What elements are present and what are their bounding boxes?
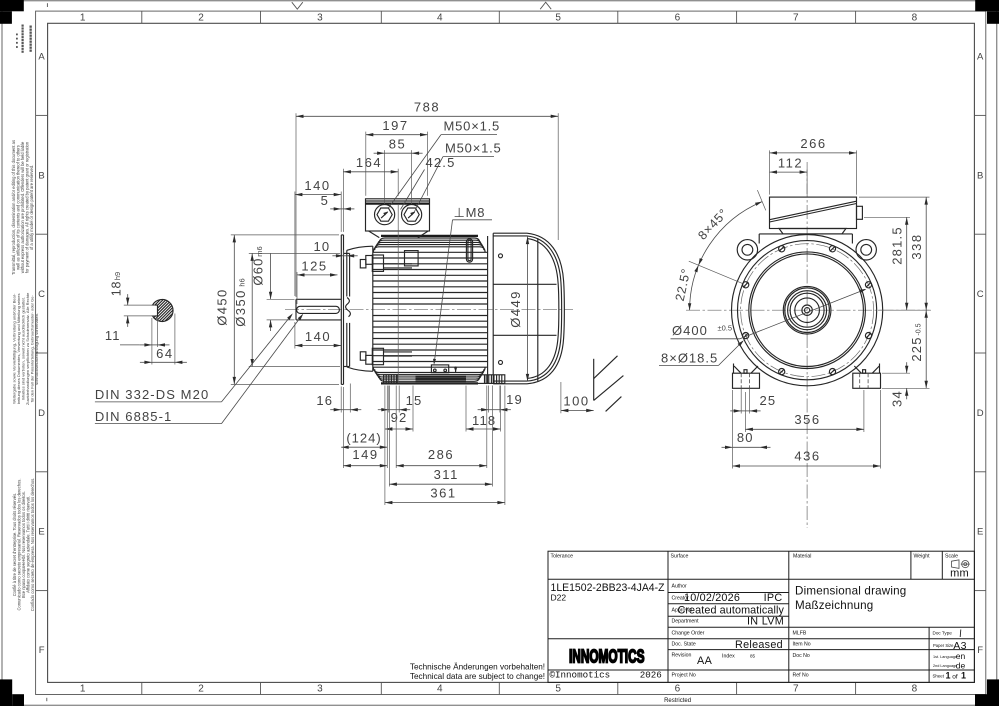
svg-text:Revision: Revision	[672, 653, 692, 659]
svg-text:2: 2	[198, 13, 204, 24]
svg-text:D22: D22	[551, 593, 567, 603]
svg-text:Paper Size: Paper Size	[933, 643, 954, 648]
svg-text:M50×1.5: M50×1.5	[444, 119, 501, 134]
svg-text:E: E	[977, 527, 983, 538]
svg-text:7: 7	[793, 684, 799, 695]
svg-text:Created automatically: Created automatically	[677, 604, 784, 616]
svg-text:Doc. State: Doc. State	[672, 642, 696, 648]
svg-text:Dimensional drawing: Dimensional drawing	[795, 585, 906, 598]
svg-text:Maßzeichnung: Maßzeichnung	[795, 599, 873, 612]
svg-text:1: 1	[961, 671, 966, 681]
svg-text:Project No: Project No	[672, 673, 696, 679]
svg-text:8: 8	[912, 13, 918, 24]
svg-text:INNOMOTICS: INNOMOTICS	[569, 646, 645, 666]
svg-text:15: 15	[406, 393, 423, 408]
svg-text:IPC: IPC	[764, 592, 783, 604]
svg-text:164: 164	[356, 155, 382, 170]
svg-text:16: 16	[316, 393, 333, 408]
svg-text:266: 266	[800, 136, 826, 151]
svg-text:Technische Änderungen vorbehal: Technische Änderungen vorbehalten!	[410, 661, 545, 671]
svg-text:6: 6	[675, 13, 681, 24]
svg-text:F: F	[977, 645, 983, 656]
svg-text:10: 10	[313, 239, 330, 254]
svg-text:-0.5: -0.5	[916, 323, 923, 335]
svg-text:DIN 332-DS M20: DIN 332-DS M20	[95, 387, 209, 402]
svg-text:225: 225	[909, 336, 924, 361]
svg-text:286: 286	[428, 447, 454, 462]
svg-text:125: 125	[301, 258, 327, 273]
svg-text:de: de	[956, 661, 966, 671]
svg-text:42.5: 42.5	[425, 155, 455, 170]
svg-text:4: 4	[437, 13, 443, 24]
svg-text:85: 85	[750, 654, 756, 659]
svg-text:of: of	[952, 674, 958, 681]
svg-text:356: 356	[794, 412, 820, 427]
svg-text:3: 3	[317, 13, 323, 24]
svg-text:140: 140	[305, 329, 331, 344]
svg-text:64: 64	[156, 346, 173, 361]
svg-text:Scale: Scale	[945, 554, 958, 560]
svg-text:7: 7	[793, 13, 799, 24]
svg-text:19: 19	[506, 392, 523, 407]
svg-text:5: 5	[321, 193, 329, 208]
svg-text:85: 85	[389, 137, 406, 152]
svg-text:2: 2	[198, 684, 204, 695]
svg-text:Confiado como secreto de empre: Confiado como secreto de empresa. Nos re…	[30, 478, 35, 612]
svg-text:C: C	[38, 289, 45, 300]
svg-text:of a utility model or design p: of a utility model or design patent are …	[29, 165, 34, 250]
svg-text:Weight: Weight	[914, 554, 931, 560]
svg-text:MLFB: MLFB	[793, 630, 807, 636]
svg-text:197: 197	[382, 118, 408, 133]
svg-text:788: 788	[414, 100, 440, 115]
svg-text:Surface: Surface	[671, 554, 689, 560]
svg-text:h9: h9	[113, 272, 122, 280]
svg-text:92: 92	[391, 410, 408, 425]
svg-text:Index: Index	[722, 654, 735, 660]
svg-text:B: B	[38, 170, 44, 181]
svg-text:AA: AA	[697, 655, 713, 667]
svg-text:311: 311	[434, 467, 459, 482]
svg-text:Department: Department	[672, 619, 700, 625]
svg-text:Doc No: Doc No	[793, 653, 810, 659]
svg-text:Ø60: Ø60	[251, 257, 266, 285]
svg-text:Restricted: Restricted	[664, 698, 691, 704]
svg-text:Ø450: Ø450	[215, 288, 230, 325]
svg-text:C: C	[977, 289, 984, 300]
svg-text:Ø449: Ø449	[508, 290, 523, 327]
svg-text:6: 6	[675, 684, 681, 695]
svg-text:A: A	[38, 52, 45, 63]
svg-text:1: 1	[80, 13, 86, 24]
svg-text:B: B	[977, 170, 983, 181]
svg-text:D: D	[977, 408, 984, 419]
svg-text:Technical data are subject to: Technical data are subject to change!	[410, 672, 545, 681]
svg-text:80: 80	[737, 430, 754, 445]
svg-text:338: 338	[909, 233, 924, 259]
svg-text:Doc Type: Doc Type	[933, 630, 953, 635]
svg-text:1LE1502-2BB23-4JA4-Z: 1LE1502-2BB23-4JA4-Z	[551, 582, 665, 594]
svg-text:Released: Released	[735, 639, 783, 651]
svg-text:D: D	[38, 408, 45, 419]
svg-text:2026: 2026	[640, 670, 662, 681]
svg-text:10/02/2026: 10/02/2026	[684, 592, 740, 604]
svg-text:281.5: 281.5	[889, 226, 904, 265]
svg-text:⊥M8: ⊥M8	[454, 205, 486, 220]
svg-text:5: 5	[555, 13, 561, 24]
svg-text:2nd Language: 2nd Language	[933, 664, 957, 668]
svg-text:361: 361	[430, 485, 456, 500]
svg-text:1: 1	[80, 684, 86, 695]
svg-text:(124): (124)	[346, 431, 381, 446]
svg-text:E: E	[38, 527, 44, 538]
svg-text:436: 436	[794, 448, 820, 463]
svg-text:8×Ø18.5: 8×Ø18.5	[661, 351, 718, 366]
svg-text:11: 11	[105, 328, 121, 343]
svg-text:©Innomotics: ©Innomotics	[550, 670, 611, 681]
svg-text:Ø350: Ø350	[233, 289, 248, 326]
svg-text:M50×1.5: M50×1.5	[445, 141, 502, 156]
svg-text:149: 149	[352, 447, 378, 462]
svg-text:mm: mm	[950, 568, 969, 580]
svg-text:F: F	[39, 645, 45, 656]
svg-text:m6: m6	[255, 246, 264, 256]
svg-text:1st. Language: 1st. Language	[933, 655, 957, 659]
svg-text:25: 25	[759, 393, 776, 408]
svg-text:4: 4	[437, 684, 443, 695]
svg-text:140: 140	[304, 178, 330, 193]
svg-text:112: 112	[778, 155, 803, 170]
svg-text:Item No: Item No	[793, 642, 811, 648]
svg-text:Ref No: Ref No	[793, 673, 809, 679]
svg-text:DIN 6885-1: DIN 6885-1	[95, 409, 172, 424]
svg-text:8: 8	[912, 684, 918, 695]
svg-text:h6: h6	[238, 278, 247, 286]
svg-text:18: 18	[110, 281, 124, 297]
svg-text:Tolerance: Tolerance	[551, 554, 574, 560]
svg-text:Change Order: Change Order	[672, 630, 705, 636]
svg-text:A: A	[977, 52, 984, 63]
svg-text:Ø400: Ø400	[672, 323, 708, 338]
svg-text:1: 1	[945, 671, 950, 681]
svg-text:schmacksmustereintragung vorbe: schmacksmustereintragung vorbehalten.	[34, 313, 39, 385]
svg-text:en: en	[956, 651, 966, 661]
svg-text:Material: Material	[793, 554, 811, 560]
svg-text:5: 5	[555, 684, 561, 695]
svg-text:IN LVM: IN LVM	[747, 616, 784, 628]
svg-text:34: 34	[889, 390, 904, 407]
svg-text:Sheet: Sheet	[933, 674, 945, 679]
svg-text:100: 100	[563, 393, 589, 408]
svg-text:Author: Author	[672, 584, 688, 590]
svg-text:3: 3	[317, 684, 323, 695]
svg-text:±0.5: ±0.5	[718, 324, 733, 333]
